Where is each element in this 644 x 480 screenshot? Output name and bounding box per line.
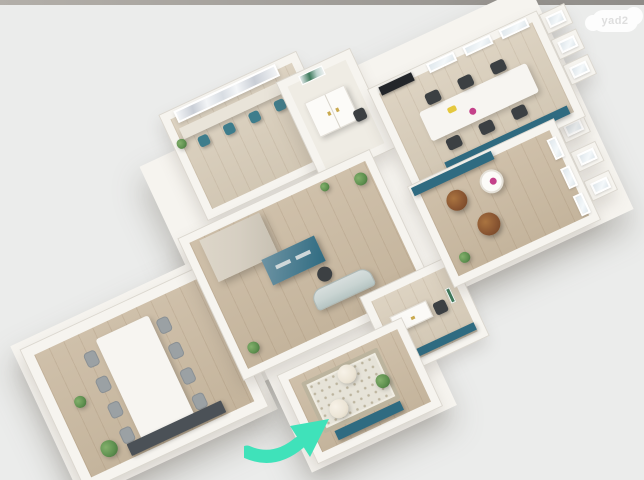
window-glass xyxy=(545,10,566,28)
cabinet-handle xyxy=(327,111,331,116)
desk-handle xyxy=(411,316,416,320)
cabinet-slit xyxy=(295,250,311,260)
window-glass xyxy=(590,176,611,194)
screenshot-canvas: yad2 xyxy=(0,0,644,480)
window-glass xyxy=(576,147,597,165)
cabinet-slit xyxy=(275,259,291,269)
window-glass xyxy=(569,60,590,78)
entrance-arrow-icon xyxy=(244,412,334,468)
floorplan-3d xyxy=(0,0,644,480)
cabinet-handle xyxy=(335,107,339,112)
yad2-logo-text: yad2 xyxy=(601,15,628,27)
window-glass xyxy=(557,35,578,53)
yad2-logo: yad2 xyxy=(592,10,638,32)
flower-vase xyxy=(489,177,498,186)
